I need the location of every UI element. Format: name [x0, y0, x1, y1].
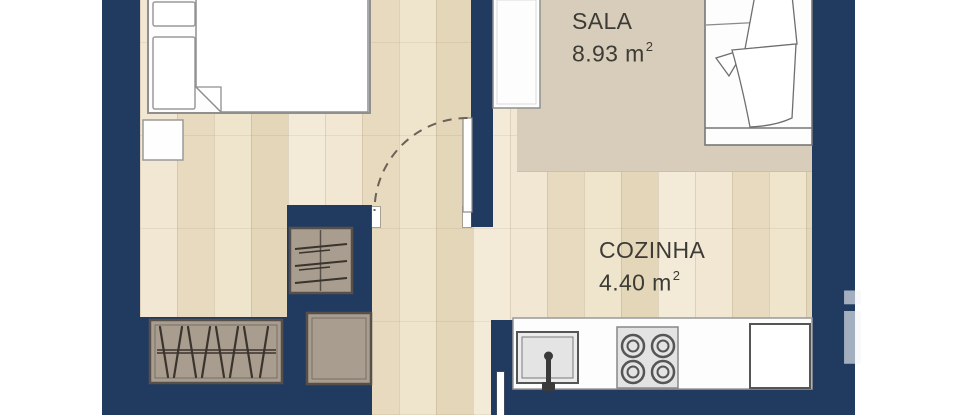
pillow-icon: [153, 37, 195, 109]
door-leaf-icon: [463, 118, 472, 212]
room-area: 4.40 m2: [599, 264, 705, 297]
refrigerator-icon: [750, 324, 810, 388]
floor-plan: i SALA 8.93 m2 COZINHA 4.40 m2: [0, 0, 960, 415]
blanket-icon: [196, 0, 368, 112]
room-label-cozinha: COZINHA 4.40 m2: [599, 236, 705, 297]
room-name: COZINHA: [599, 236, 705, 264]
room-name: SALA: [572, 7, 653, 35]
storage-box-icon: [307, 313, 371, 384]
bed-icon: [148, 0, 370, 113]
room-label-sala: SALA 8.93 m2: [572, 7, 653, 68]
door-icon: [375, 118, 473, 212]
tall-cabinet-icon: [493, 0, 540, 108]
sink-icon: [517, 332, 578, 391]
door-swing-arc-icon: [375, 118, 468, 211]
right-fade-overlay: [855, 0, 960, 415]
hanger-wardrobe-icon: [150, 320, 282, 383]
sofa-bed-icon: [705, 0, 812, 145]
kitchen-counter-icon: [513, 318, 812, 391]
shelf-unit-icon: [290, 228, 352, 293]
room-area: 8.93 m2: [572, 35, 653, 68]
furniture-layer: i: [0, 0, 960, 415]
nightstand-icon: [143, 120, 183, 160]
pillow-icon: [153, 2, 195, 26]
stove-burners-icon: [617, 327, 678, 388]
